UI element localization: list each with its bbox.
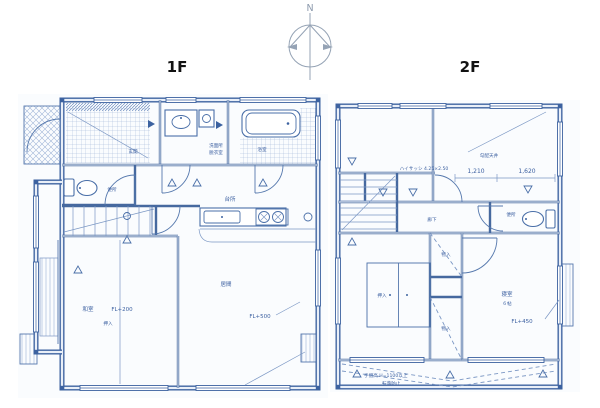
floor1-title: 1F: [167, 58, 188, 76]
dimension-right: 1,620: [518, 168, 535, 175]
bath-tile-strip: [300, 108, 316, 138]
floor2-title: 2F: [460, 58, 481, 76]
room-label-hall: 廊下: [427, 216, 437, 223]
compass-north-label: N: [306, 3, 313, 14]
room-label-toilet-2f: 便所: [506, 211, 516, 218]
shutter-box-right: [301, 334, 317, 362]
washer-icon: [199, 110, 214, 127]
room-label-closet-upper: 物入: [441, 251, 451, 258]
annotation-fl500: FL+500: [249, 314, 271, 320]
scan-tint-2f: [330, 100, 580, 392]
room-label-toilet-1f: 便所: [107, 186, 117, 193]
annotation-fl450: FL+450: [511, 319, 533, 325]
room-label-genkan: 玄関: [128, 148, 138, 155]
room-label-bath: 浴室: [257, 146, 267, 153]
bath-tile-floor: [240, 138, 316, 164]
room-label-closet-lower: 物入: [441, 325, 451, 332]
room-label-washroom-1: 洗面所: [209, 142, 223, 149]
annotation-ceiling-note: 勾配天井: [480, 152, 499, 159]
room-label-bedroom-size: ６帖: [502, 300, 512, 307]
annotation-fl200: FL+200: [111, 307, 133, 313]
room-label-kitchen: 台所: [224, 195, 236, 203]
entry-porch-hatch: [24, 106, 60, 164]
annotation-rail-note-2: 転落防止: [382, 380, 401, 387]
dimension-left: 1,210: [467, 168, 484, 175]
washbasin-icon: [165, 110, 197, 136]
blueprint-canvas: N 1F 2F: [0, 0, 600, 408]
annotation-sash-note: ハイサッシ 4.25×2.50: [400, 166, 449, 172]
room-label-oshiire-1f: 押入: [103, 320, 113, 327]
floor-plan-sheet: N 1F 2F: [0, 0, 600, 408]
bathtub-icon: [242, 110, 300, 137]
room-label-bedroom: 寝室: [501, 290, 513, 298]
room-label-washroom-2: 脱衣室: [209, 149, 223, 156]
toilet-icon-2f: [523, 210, 556, 228]
room-label-living: 居間: [220, 281, 232, 288]
engawa-hatch: [40, 258, 58, 336]
north-compass: N: [287, 3, 333, 80]
annotation-rail-note-1: 手摺高 H=1100以上: [364, 372, 408, 379]
room-label-tatami: 和室: [82, 305, 94, 313]
room-label-oshiire-2f: 押入: [377, 292, 387, 299]
